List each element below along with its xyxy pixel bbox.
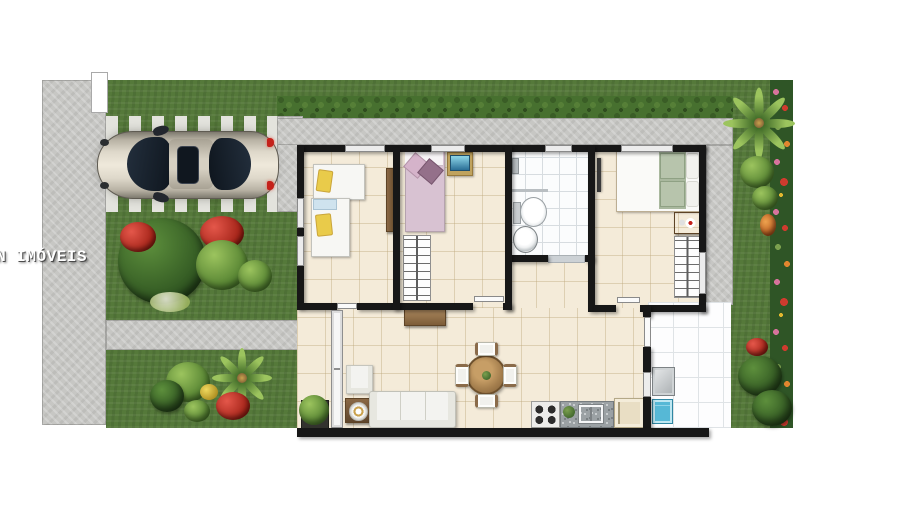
palm-core: [754, 118, 764, 128]
three-seat-sofa: [369, 391, 456, 428]
red-flower-shrub: [216, 392, 250, 420]
wall-kitchen-right-3: [643, 397, 651, 430]
wall-mounted-tv: [597, 158, 601, 192]
garden-bush: [752, 186, 778, 210]
wall-bath-bottom-left: [508, 255, 548, 262]
bed-sage-pillow: [660, 153, 685, 179]
sliding-glass-door: [331, 310, 343, 428]
shower-head: [512, 158, 519, 174]
window-bedroomB-top: [431, 145, 465, 152]
bathroom-door-mat: [548, 255, 585, 263]
wall-bedroomB-bottom-left: [398, 303, 473, 310]
wall-bedroomC-bottom-left: [594, 305, 616, 312]
door-leaf-bedroomC: [617, 297, 640, 303]
wall-between-A-B: [393, 148, 400, 310]
car-headlight-top: [100, 139, 109, 146]
car-taillight-top: [267, 138, 274, 147]
yellow-flowers: [200, 384, 218, 400]
window-bedroomC-top: [621, 145, 673, 152]
armchair: [346, 365, 373, 394]
dining-chair: [455, 364, 469, 387]
kitchen-sink: [578, 404, 604, 424]
car-windshield: [127, 137, 173, 191]
door-leaf-bedroomB: [474, 296, 504, 302]
wall-kitchen-right-2: [643, 347, 651, 372]
pale-flowers: [150, 292, 190, 312]
window-bedroomA-left-2: [297, 236, 304, 266]
wall-bedroomA-bottom-right: [357, 303, 398, 310]
media-cabinet: [674, 212, 701, 234]
wall-bedroomA-bottom-left: [297, 303, 337, 310]
car-taillight-bottom: [267, 181, 274, 190]
wood-sideboard: [404, 309, 446, 326]
toilet-bowl: [520, 197, 547, 227]
top-hedge-strip: [277, 96, 733, 119]
window-bathroom-top: [545, 145, 572, 152]
refrigerator: [614, 398, 644, 428]
table-lamp: [349, 402, 368, 421]
walkway-top: [277, 118, 733, 145]
bed-pillow: [315, 213, 333, 237]
red-flower-shrub: [120, 222, 156, 252]
car-headlight-bottom: [100, 182, 109, 189]
table-centerpiece: [482, 371, 491, 380]
red-flower-shrub: [746, 338, 768, 356]
bed-white-pillow: [686, 181, 699, 207]
palm-tree: [724, 84, 794, 162]
bed-sage-pillow: [660, 181, 685, 207]
wall-between-B-hall: [505, 145, 512, 310]
bed-pillow: [316, 169, 334, 193]
counter-plant: [563, 406, 575, 418]
service-door-leaf: [644, 317, 651, 347]
utility-tank: [652, 367, 675, 396]
open-wardrobe: [403, 235, 431, 301]
window-bedroomC-right: [699, 252, 706, 294]
floor-plan-canvas: ON IMÓVEIS: [0, 0, 900, 506]
wall-kitchen-right-1: [643, 305, 651, 317]
palm-core: [237, 373, 247, 383]
bed-white-pillow: [686, 153, 699, 179]
round-washbasin: [513, 226, 538, 253]
wall-bottom: [297, 428, 709, 437]
washing-machine: [652, 399, 673, 424]
tv-screen: [450, 155, 470, 171]
car-sunroof: [177, 146, 199, 184]
garden-bush: [752, 390, 792, 426]
walkway-right: [706, 145, 733, 305]
garden-bush: [150, 380, 184, 412]
gate-pillar: [91, 72, 108, 113]
window-bedroomA-top: [345, 145, 385, 152]
wall-between-bath-C: [588, 145, 595, 312]
window-kitchen-right: [643, 372, 651, 397]
orange-flowers: [760, 214, 776, 236]
window-bedroomA-left-1: [297, 198, 304, 228]
porch-plant: [299, 395, 329, 425]
hall-floor: [508, 260, 594, 310]
walkway-left-mid: [106, 320, 303, 350]
door-leaf-bedroomA: [337, 303, 357, 309]
dining-chair: [475, 342, 498, 356]
parked-car: [97, 126, 279, 202]
garden-bush: [184, 400, 210, 422]
bed-blanket: [313, 199, 337, 210]
watermark-text: ON IMÓVEIS: [0, 248, 87, 266]
open-wardrobe: [674, 236, 701, 298]
garden-bush: [238, 260, 272, 292]
dining-chair: [475, 394, 498, 408]
four-burner-stove: [531, 401, 560, 428]
dining-chair: [503, 364, 517, 387]
garden-bush: [740, 156, 774, 188]
shower-arm: [512, 189, 548, 192]
